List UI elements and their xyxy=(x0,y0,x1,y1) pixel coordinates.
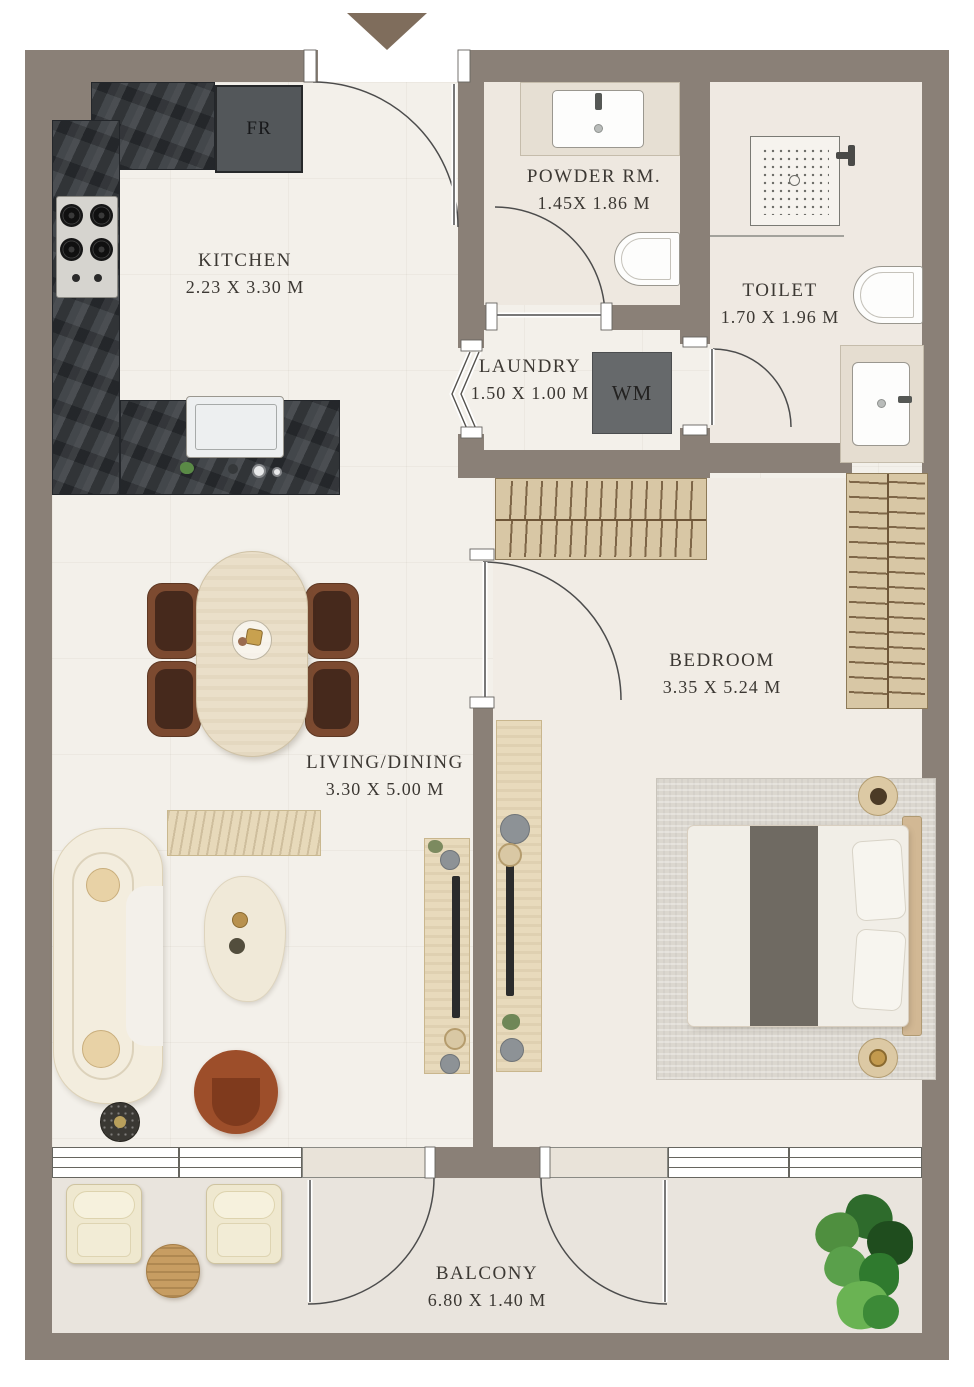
toilet-dims: 1.70 X 1.96 M xyxy=(721,304,840,330)
toilet-sink-drain xyxy=(877,399,886,408)
balcony-door-panel xyxy=(541,1147,668,1178)
sofa-cushion xyxy=(82,1030,120,1068)
plant-leaf-icon xyxy=(863,1295,899,1329)
balcony-armchair xyxy=(206,1184,282,1264)
bedroom-label: BEDROOM 3.35 X 5.24 M xyxy=(663,648,782,700)
balcony-armchair xyxy=(66,1184,142,1264)
chair-cushion xyxy=(155,669,193,729)
bedroom-name: BEDROOM xyxy=(663,648,782,674)
kitchen-sink xyxy=(186,396,284,458)
powder-sink xyxy=(552,90,644,148)
toilet-label: TOILET 1.70 X 1.96 M xyxy=(721,278,840,330)
balcony-chair-back xyxy=(213,1191,275,1219)
sofa-opening xyxy=(126,886,163,1046)
stool-decor xyxy=(500,814,530,844)
kitchen-faucet xyxy=(228,464,238,474)
balcony-label: BALCONY 6.80 X 1.40 M xyxy=(428,1261,547,1313)
toilet-wc-rim xyxy=(860,272,914,318)
cooktop-knob xyxy=(94,274,102,282)
bowl-decor xyxy=(500,1038,524,1062)
toilet-sink xyxy=(852,362,910,446)
burner-icon xyxy=(60,238,83,261)
washing-machine-label: WM xyxy=(593,381,671,406)
chair-cushion xyxy=(313,669,351,729)
window-panel xyxy=(789,1147,922,1178)
powder-drain xyxy=(594,124,603,133)
fridge: FR xyxy=(215,85,303,173)
shower-tray xyxy=(750,136,840,226)
console-bench xyxy=(167,810,321,856)
kitchen-dims: 2.23 X 3.30 M xyxy=(186,274,305,300)
burner-icon xyxy=(90,204,113,227)
wardrobe-hangers xyxy=(498,481,704,519)
powder-faucet xyxy=(595,93,602,110)
bed-pillow xyxy=(851,928,906,1011)
balcony-chair-seat xyxy=(217,1223,271,1257)
balcony-name: BALCONY xyxy=(428,1261,547,1287)
coffee-table-decor xyxy=(229,938,245,954)
chair-cushion xyxy=(313,591,351,651)
balcony-chair-seat xyxy=(77,1223,131,1257)
bowl-decor xyxy=(440,850,460,870)
wall-balcony-stub xyxy=(434,1147,541,1178)
balcony-door-panel xyxy=(302,1147,434,1178)
wall-bottom xyxy=(25,1333,949,1360)
balcony-plant xyxy=(815,1195,930,1335)
plant-decor-icon xyxy=(502,1014,520,1030)
wall-powder-bottom-left xyxy=(458,305,495,330)
wall-kitchen-corner xyxy=(25,50,91,120)
powder-room-dims: 1.45X 1.86 M xyxy=(527,190,661,216)
toilet-faucet xyxy=(898,396,912,403)
powder-wc-rim xyxy=(621,238,671,280)
entry-arrow-icon xyxy=(347,13,427,50)
dining-chair xyxy=(305,661,359,737)
kitchen-label: KITCHEN 2.23 X 3.30 M xyxy=(186,248,305,300)
living-dining-label: LIVING/DINING 3.30 X 5.00 M xyxy=(306,750,464,802)
laundry-dims: 1.50 X 1.00 M xyxy=(471,380,590,406)
balcony-chair-back xyxy=(73,1191,135,1219)
window-panel xyxy=(668,1147,789,1178)
balcony-dims: 6.80 X 1.40 M xyxy=(428,1287,547,1313)
toilet-wc xyxy=(853,266,923,324)
wall-living-bedroom-divider xyxy=(473,700,493,1147)
wall-toilet-south xyxy=(710,443,852,473)
wall-laundry-jamb-upper xyxy=(458,330,484,348)
wall-powder-bottom-right xyxy=(603,305,680,330)
wall-laundry-bottom xyxy=(458,450,710,478)
plant-decor-icon xyxy=(428,840,443,853)
shower-drain xyxy=(789,175,800,186)
shower-head-icon xyxy=(848,145,855,166)
tray-decor xyxy=(498,843,522,867)
window-panel xyxy=(52,1147,179,1178)
bed-pillow xyxy=(851,838,906,921)
kitchen-name: KITCHEN xyxy=(186,248,305,274)
bowl-decor xyxy=(440,1054,460,1074)
powder-room-name: POWDER RM. xyxy=(527,164,661,190)
living-dining-name: LIVING/DINING xyxy=(306,750,464,776)
sink-basin xyxy=(195,404,277,450)
kitchen-herb-plant-icon xyxy=(180,462,194,474)
wardrobe-hangers xyxy=(849,476,887,706)
wall-toilet-west-upper xyxy=(680,82,710,344)
wardrobe-hall xyxy=(495,478,707,560)
fridge-label: FR xyxy=(217,118,301,140)
balcony-table xyxy=(146,1244,200,1298)
wardrobe-hangers xyxy=(498,519,704,557)
armchair-cushion xyxy=(212,1078,260,1126)
bedroom-dims: 3.35 X 5.24 M xyxy=(663,674,782,700)
laundry-label: LAUNDRY 1.50 X 1.00 M xyxy=(471,354,590,406)
washing-machine: WM xyxy=(592,352,672,434)
wardrobe-rod xyxy=(887,474,889,708)
wardrobe-bedroom xyxy=(846,473,928,709)
toilet-name: TOILET xyxy=(721,278,840,304)
powder-room-label: POWDER RM. 1.45X 1.86 M xyxy=(527,164,661,216)
coffee-table xyxy=(204,876,286,1002)
window-panel xyxy=(179,1147,302,1178)
dining-chair xyxy=(147,583,201,659)
chair-cushion xyxy=(155,591,193,651)
laundry-name: LAUNDRY xyxy=(471,354,590,380)
wall-top-right xyxy=(458,50,949,82)
nightstand-lamp xyxy=(870,788,887,805)
floor-plan: FR WM xyxy=(0,0,974,1387)
tv-living xyxy=(452,876,460,1018)
dining-chair xyxy=(147,661,201,737)
wardrobe-hangers xyxy=(887,476,925,706)
tray-decor xyxy=(444,1028,466,1050)
side-table-plant-icon xyxy=(114,1116,126,1128)
centerpiece-box xyxy=(245,628,264,647)
wardrobe-rod xyxy=(496,519,706,521)
cooktop-knob xyxy=(72,274,80,282)
dining-chair xyxy=(305,583,359,659)
burner-icon xyxy=(60,204,83,227)
wall-left xyxy=(25,50,52,1360)
bed-runner-stripe xyxy=(750,826,818,1026)
sofa-cushion xyxy=(86,868,120,902)
kitchen-dish xyxy=(272,467,282,477)
kitchen-dish xyxy=(252,464,266,478)
coffee-table-decor xyxy=(232,912,248,928)
powder-wc xyxy=(614,232,680,286)
burner-icon xyxy=(90,238,113,261)
nightstand-lamp xyxy=(869,1049,887,1067)
centerpiece-flower xyxy=(238,637,247,646)
living-dining-dims: 3.30 X 5.00 M xyxy=(306,776,464,802)
wall-powder-left xyxy=(458,82,484,305)
kitchen-counter-left xyxy=(52,120,120,495)
